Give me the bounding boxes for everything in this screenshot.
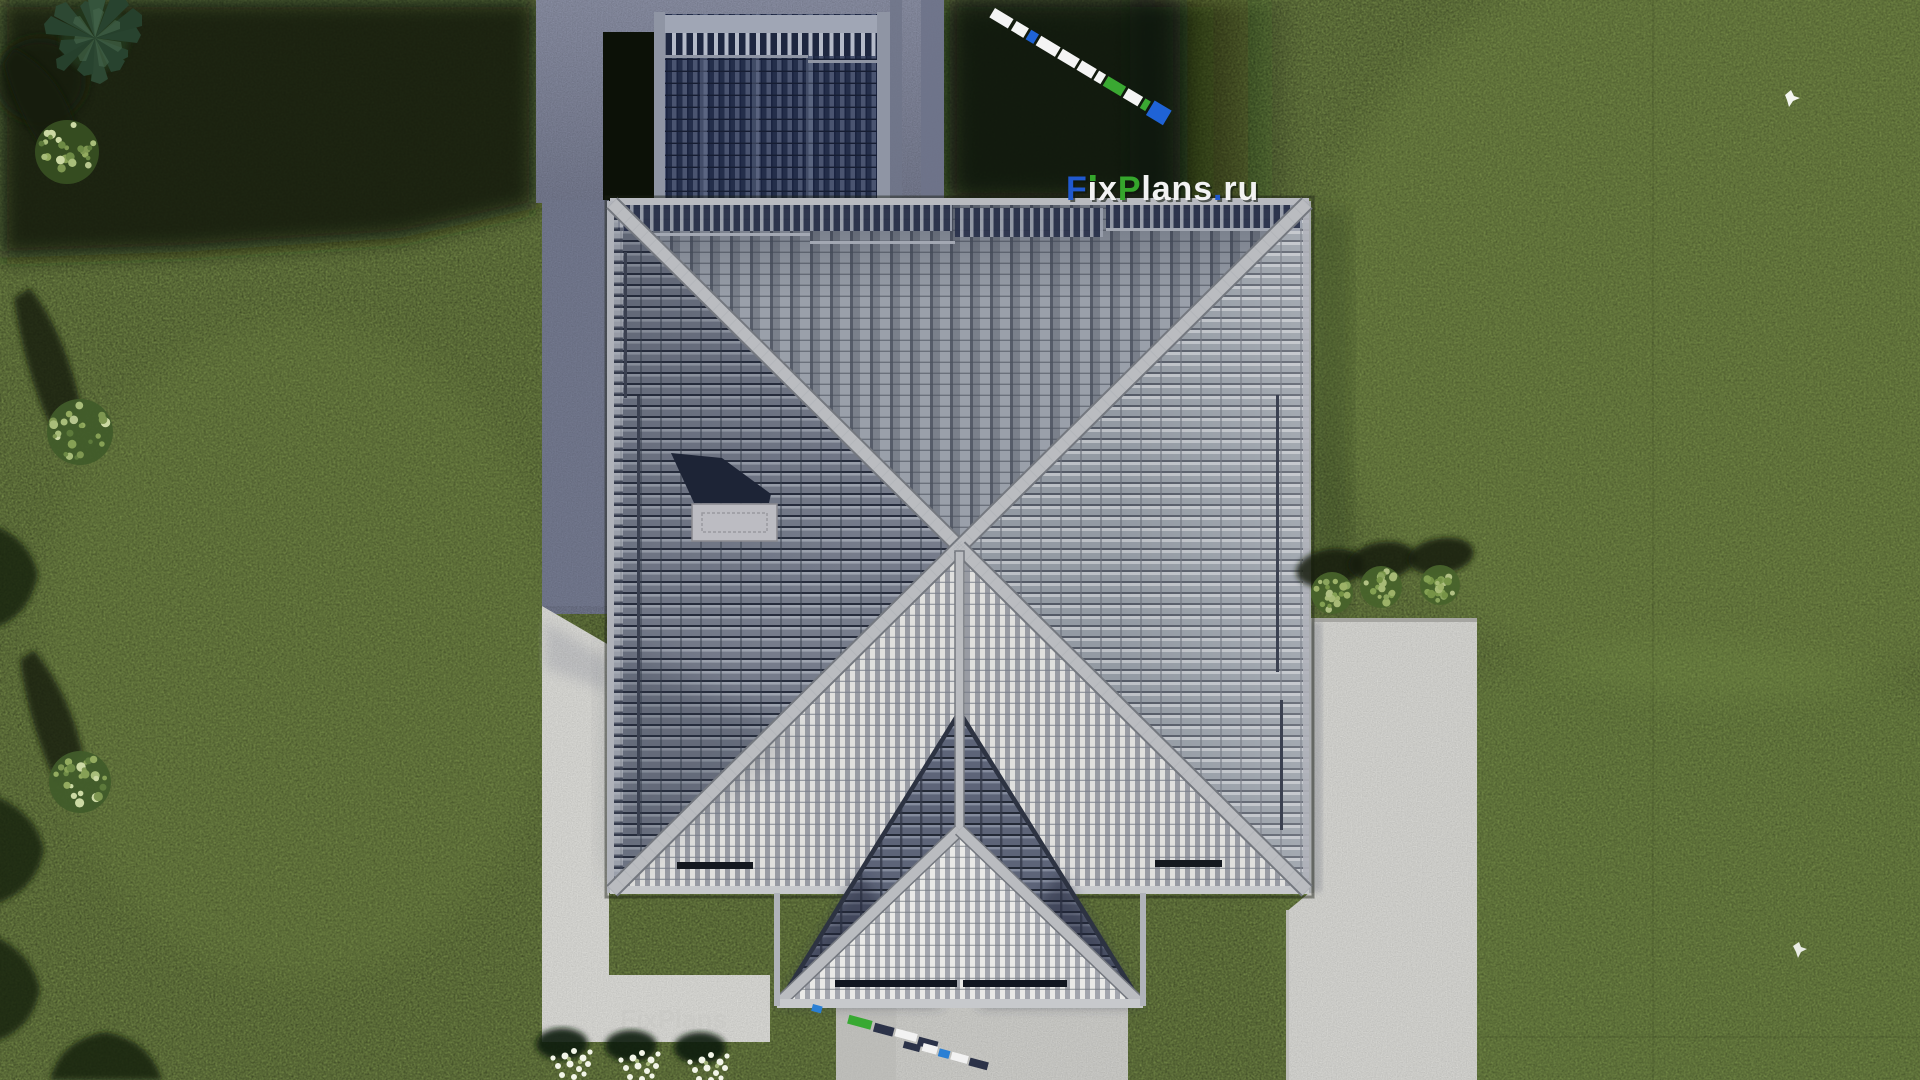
svg-text:FixPlans: FixPlans [620, 1004, 727, 1034]
